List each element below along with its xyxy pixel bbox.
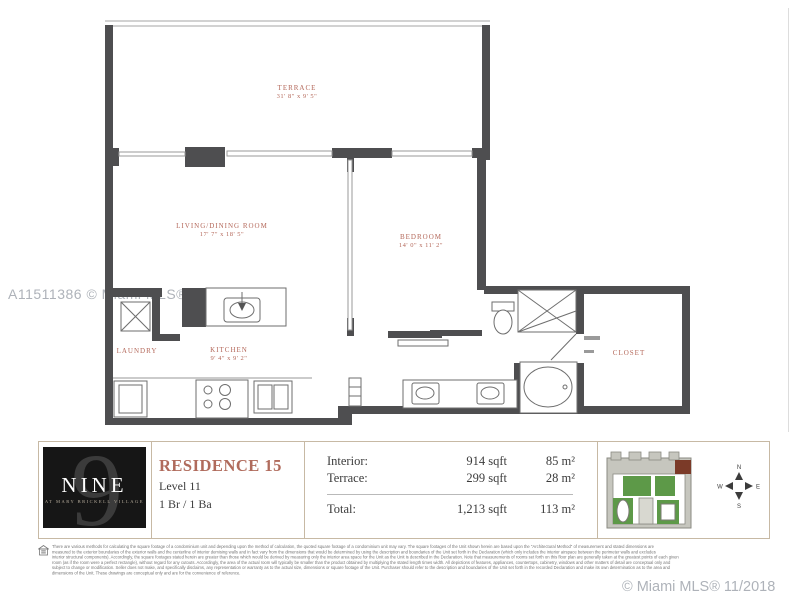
toilet xyxy=(492,302,514,334)
sliding-door xyxy=(392,151,472,156)
equal-housing-icon xyxy=(38,545,49,556)
logo-name: NINE xyxy=(43,473,146,498)
keyplan-icon xyxy=(599,446,699,534)
kitchen-island xyxy=(206,288,286,326)
wall-segment xyxy=(105,160,113,425)
compass-n: N xyxy=(737,465,741,471)
terrace-railing xyxy=(105,21,490,26)
area-table: Interior: 914 sqft 85 m² Terrace: 299 sq… xyxy=(327,454,579,519)
area-row-interior: Interior: 914 sqft 85 m² xyxy=(327,454,579,471)
bathtub xyxy=(520,362,577,413)
room-label-laundry: LAUNDRY xyxy=(117,347,158,355)
area-divider-rule xyxy=(327,494,573,495)
residence-title: RESIDENCE 15 xyxy=(159,456,309,476)
shower xyxy=(518,290,576,332)
room-label-bedroom: BEDROOM 14' 0" x 11' 2" xyxy=(399,233,443,249)
wall-segment xyxy=(152,334,180,341)
mls-watermark-bottom-right: © Miami MLS® 11/2018 xyxy=(622,579,775,595)
compass-e: E xyxy=(756,485,760,491)
window xyxy=(119,152,185,156)
area-label: Terrace: xyxy=(327,471,368,486)
area-row-total: Total: 1,213 sqft 113 m² xyxy=(327,502,579,519)
bedroom-console xyxy=(388,331,448,346)
disclaimer-line: dimensions of the Unit. These drawings a… xyxy=(52,570,768,575)
room-label-terrace: TERRACE 31' 8" x 9' 5" xyxy=(277,84,318,100)
room-label-kitchen: KITCHEN 9' 4" x 9' 2" xyxy=(210,346,248,362)
wall-segment xyxy=(682,286,690,414)
area-label: Interior: xyxy=(327,454,368,469)
logo-tagline: AT MARY BRICKELL VILLAGE xyxy=(43,499,146,504)
floor-plan-drawing xyxy=(0,0,800,440)
disclaimer-line: subject to change or modification. Selle… xyxy=(52,565,768,570)
room-label-closet: CLOSET xyxy=(613,349,645,357)
keyplan-courtyard xyxy=(623,476,651,496)
vanity-sinks xyxy=(403,380,517,408)
floorplan-page: A11511386 © Miami MLS® 2023 © Miami MLS®… xyxy=(0,0,800,600)
bedroom-glass-wall xyxy=(348,160,352,330)
compass-icon: N S W E xyxy=(717,462,761,510)
area-sqft: 1,213 sqft xyxy=(457,502,507,517)
residence-info: RESIDENCE 15 Level 11 1 Br / 1 Ba xyxy=(159,456,309,512)
disclaimer-text: There are various methods for calculatin… xyxy=(52,544,768,576)
wall-segment xyxy=(112,288,162,297)
area-metric: 85 m² xyxy=(515,454,575,469)
keyplan-cell: N S W E xyxy=(599,446,767,534)
compass-w: W xyxy=(717,485,723,491)
washer-dryer xyxy=(121,302,150,331)
room-label-living: LIVING/DINING ROOM 17' 7" x 18' 5" xyxy=(176,222,268,238)
area-row-terrace: Terrace: 299 sqft 28 m² xyxy=(327,471,579,488)
keyplan-pool xyxy=(617,500,629,522)
sliding-door xyxy=(227,151,332,156)
area-metric: 113 m² xyxy=(515,502,575,517)
area-sqft: 914 sqft xyxy=(466,454,507,469)
residence-level: Level 11 xyxy=(159,479,309,494)
wall-segment xyxy=(332,148,392,158)
area-label: Total: xyxy=(327,502,356,517)
wall-segment xyxy=(182,288,206,327)
keyplan-unit-highlight xyxy=(675,460,691,474)
area-metric: 28 m² xyxy=(515,471,575,486)
info-bar: 9 NINE AT MARY BRICKELL VILLAGE RESIDENC… xyxy=(38,441,770,539)
linen-closet xyxy=(349,378,361,406)
wall-segment xyxy=(482,25,490,160)
disclaimer-line: interior structural components). Accordi… xyxy=(52,555,768,560)
door-leaf xyxy=(551,334,576,360)
divider xyxy=(597,442,598,538)
wall-segment xyxy=(477,158,486,290)
wall-segment xyxy=(105,418,347,425)
kitchen-counter xyxy=(113,378,312,418)
residence-beds-baths: 1 Br / 1 Ba xyxy=(159,497,309,512)
wall-segment xyxy=(105,25,113,160)
closet-shelf-marks xyxy=(584,336,600,353)
wall-segment xyxy=(185,147,225,167)
wall-segment xyxy=(472,148,490,158)
divider xyxy=(151,442,152,538)
nine-logo: 9 NINE AT MARY BRICKELL VILLAGE xyxy=(43,447,146,528)
compass-s: S xyxy=(737,504,741,510)
wall-segment xyxy=(576,290,584,334)
area-sqft: 299 sqft xyxy=(466,471,507,486)
